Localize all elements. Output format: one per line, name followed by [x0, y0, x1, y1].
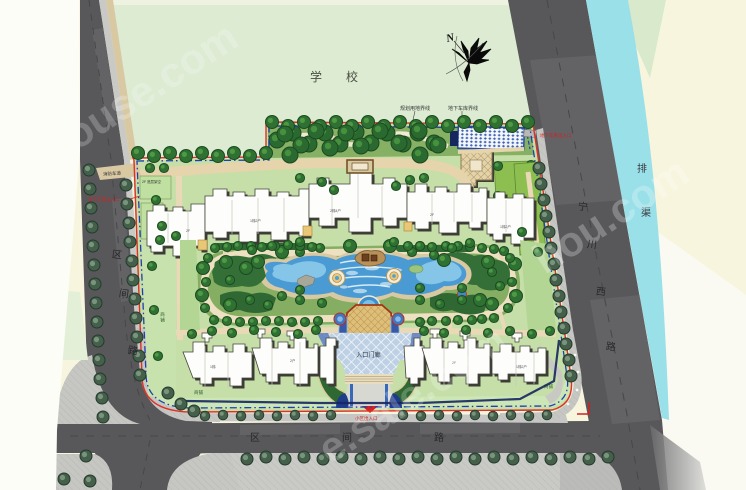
svg-text:区: 区	[250, 432, 260, 444]
svg-text:1梯: 1梯	[210, 364, 216, 369]
svg-text:入口门廊: 入口门廊	[356, 351, 381, 359]
svg-text:1梯2户: 1梯2户	[250, 218, 261, 223]
svg-text:2梯4户: 2梯4户	[330, 208, 341, 213]
svg-text:1梯2户: 1梯2户	[516, 364, 527, 369]
svg-text:地下车库界线: 地下车库界线	[448, 105, 478, 112]
svg-text:学校: 学校	[310, 69, 382, 84]
svg-text:路: 路	[605, 339, 617, 353]
svg-text:1梯2户: 1梯2户	[500, 224, 511, 229]
svg-text:2F: 2F	[186, 229, 190, 233]
svg-text:西: 西	[595, 286, 606, 298]
svg-text:路: 路	[434, 431, 444, 444]
svg-text:商铺: 商铺	[194, 389, 203, 396]
svg-text:2户: 2户	[290, 358, 295, 363]
svg-text:商铺: 商铺	[160, 311, 166, 324]
svg-text:间: 间	[342, 431, 352, 444]
svg-text:川: 川	[586, 239, 597, 251]
svg-text:规划用地界线: 规划用地界线	[400, 105, 430, 112]
svg-text:2F 底层架空: 2F 底层架空	[142, 179, 162, 184]
svg-text:2F: 2F	[430, 213, 434, 217]
svg-text:地下车库出入口: 地下车库出入口	[540, 132, 572, 139]
svg-text:区: 区	[111, 248, 123, 261]
svg-text:宁: 宁	[577, 199, 589, 213]
